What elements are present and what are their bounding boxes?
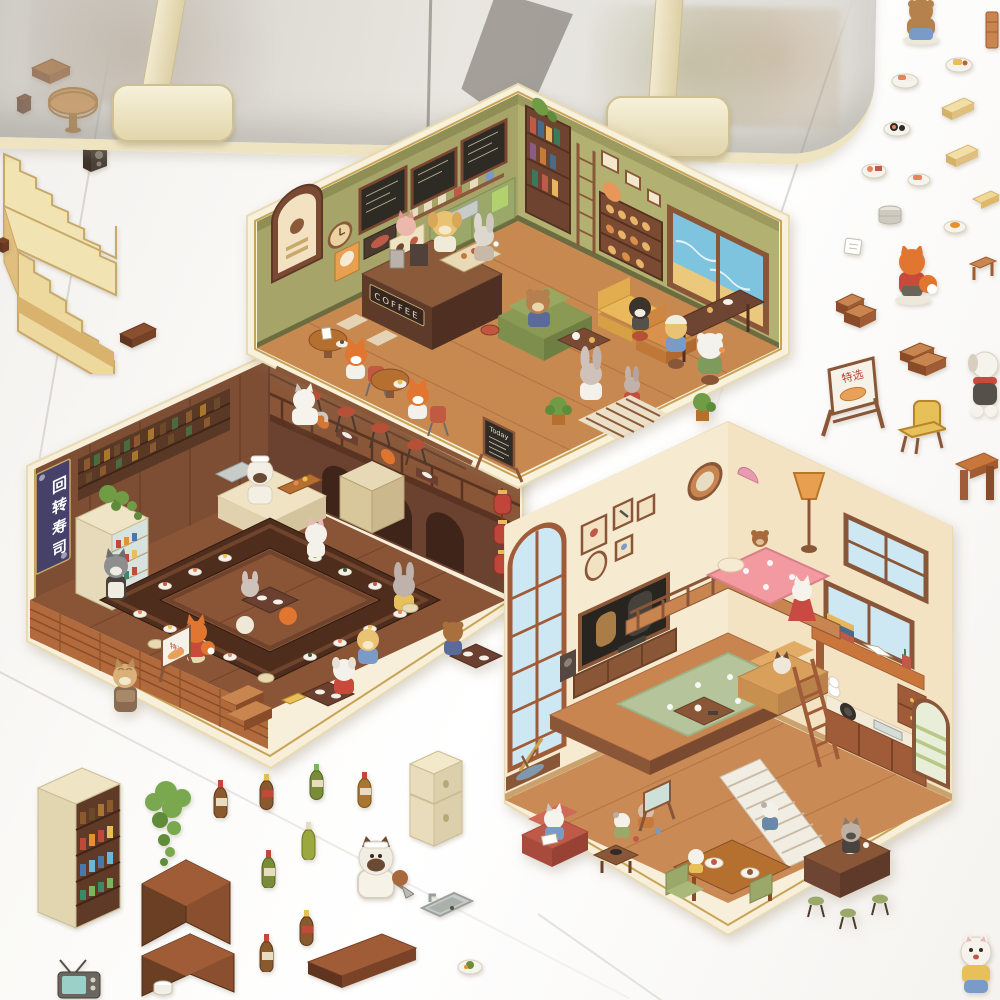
sticker-bottle: [258, 932, 276, 976]
green-stools: [808, 895, 888, 930]
sticker-wood-strip: [984, 10, 1000, 54]
fox-diner: [279, 607, 297, 625]
sticker-long-plank: [302, 932, 422, 1000]
sticker-plate-food: [456, 956, 484, 980]
sticker-tatami-mat: [940, 140, 982, 178]
sticker-bear-back: [894, 0, 950, 50]
sticker-bottle: [212, 778, 230, 822]
pillow: [718, 558, 744, 572]
sticker-white-cup: [152, 980, 176, 1000]
sticker-wood-steps: [830, 282, 886, 334]
loft-room-sticker: [498, 415, 963, 954]
sticker-plate: [942, 217, 968, 239]
sticker-steamer-pot: [876, 204, 904, 232]
dog-diner: [236, 616, 254, 634]
sushi-banner-text: 回转寿司: [36, 461, 70, 575]
sticker-tamago-plate: [944, 54, 974, 78]
sticker-bottle: [260, 848, 278, 892]
sticker-bottle: [300, 820, 318, 864]
husky-waiter: [104, 548, 128, 600]
grinder: [410, 244, 428, 266]
sticker-white-dog: [965, 349, 1000, 429]
clip-head: [112, 84, 234, 142]
sticker-sink: [416, 888, 478, 942]
sticker-wood-steps: [894, 334, 954, 380]
cooking-cat: [841, 817, 861, 853]
sticker-sushi-plate: [906, 170, 932, 192]
sticker-side-table: [966, 254, 1000, 290]
sticker-sushi-plate: [890, 70, 920, 94]
white-kitten: [688, 849, 704, 865]
sticker-maki-plate: [882, 118, 912, 142]
sticker-chef-cat: [336, 834, 414, 912]
sticker-tatami-mat: [936, 94, 978, 130]
sticker-tatami-mat: [968, 186, 1000, 220]
product-photo: 特选 回转寿司: [0, 0, 1000, 1000]
sticker-retro-tv: [52, 958, 108, 1000]
espresso-machine: [390, 250, 404, 268]
sticker-fox-back: [886, 246, 942, 310]
red-stool: [481, 325, 499, 335]
sticker-onigiri-plate: [860, 160, 888, 184]
sticker-bottle-cabinet: [30, 766, 126, 942]
golden-dog-diner: [357, 629, 379, 664]
sticker-wood-block: [0, 234, 10, 260]
sticker-paper-note: [842, 236, 866, 262]
